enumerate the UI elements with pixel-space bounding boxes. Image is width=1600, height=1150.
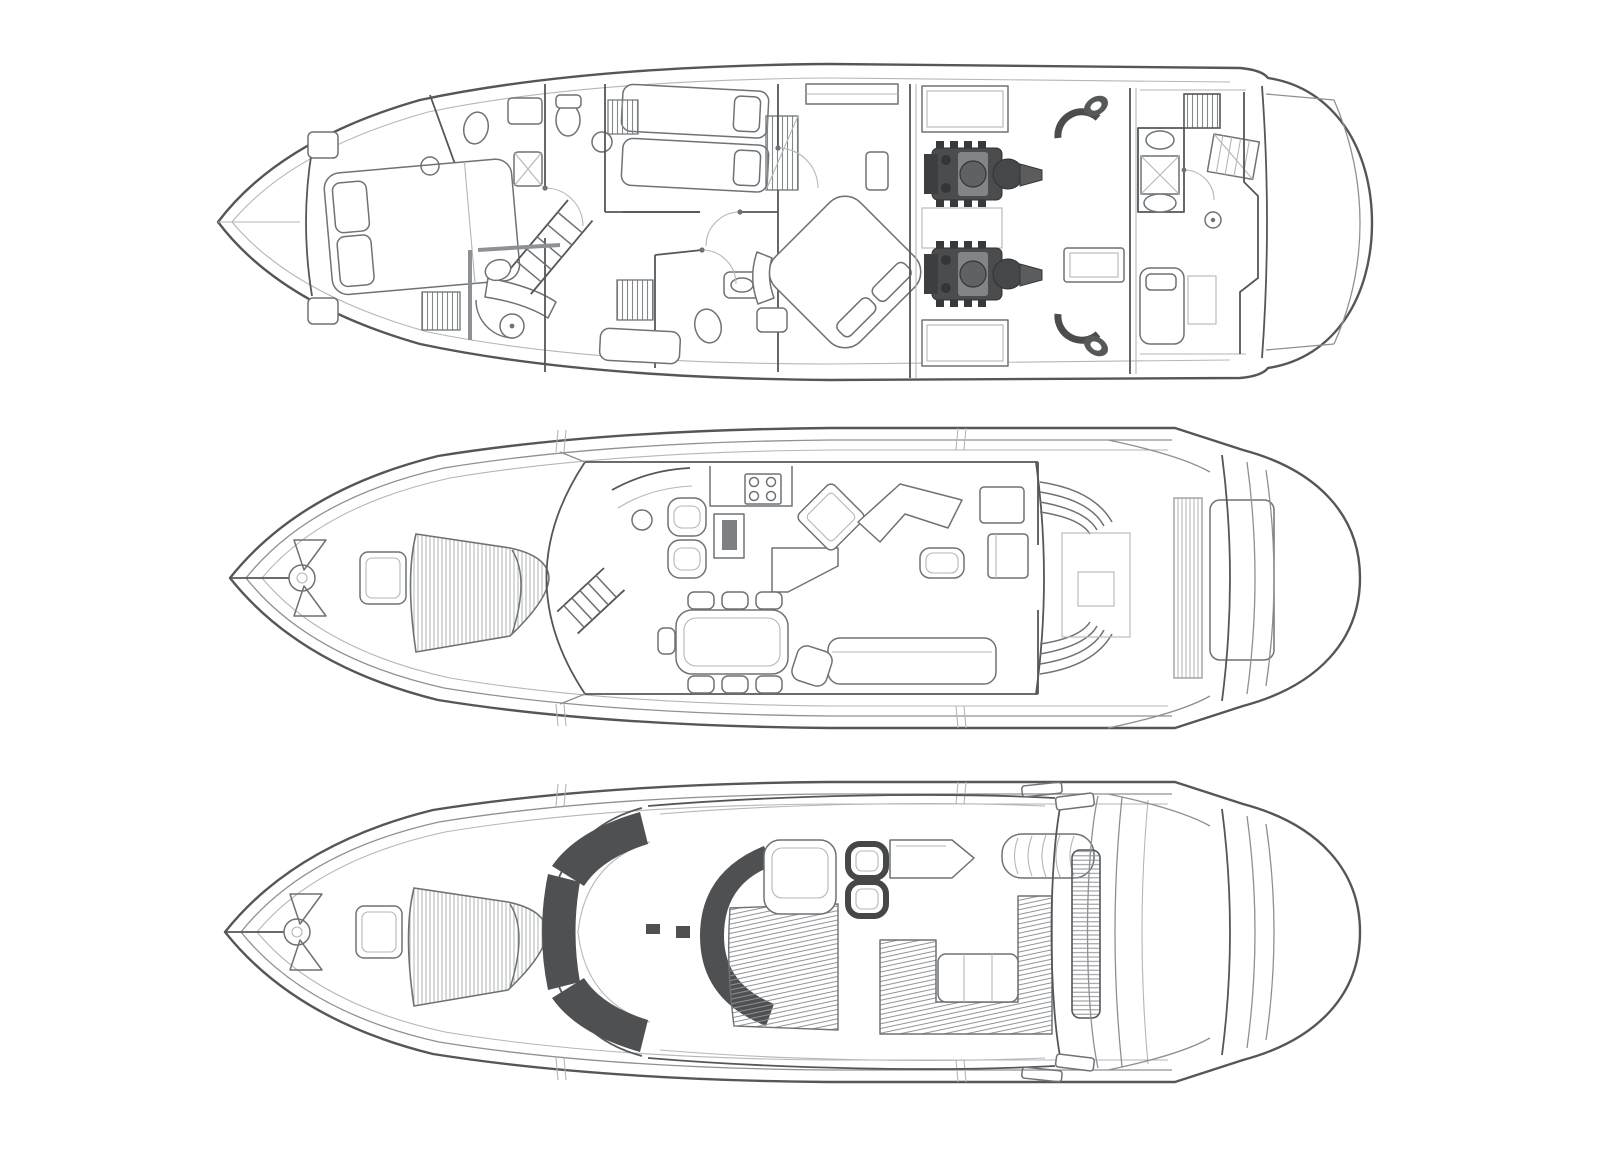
fuel-tank-starboard	[922, 320, 1008, 366]
flybridge-plan	[225, 782, 1360, 1082]
helm-sunpad	[729, 904, 838, 1030]
crew-bathroom	[1138, 128, 1184, 212]
washer	[1184, 94, 1220, 128]
yacht-deck-plans	[0, 0, 1600, 1150]
lower-deck-plan	[218, 64, 1372, 380]
deck-plans-drawing	[0, 0, 1600, 1150]
wardrobe-hatch	[422, 292, 460, 330]
floor-hatch	[617, 280, 653, 320]
windlass	[289, 565, 315, 591]
settee-table	[938, 954, 1018, 1002]
saloon-sofa	[828, 638, 996, 684]
deck-hatch	[360, 552, 406, 604]
dinette-table	[676, 610, 788, 674]
deck-hatch	[356, 906, 402, 958]
windscreen-panel	[542, 874, 580, 990]
main-deck-plan	[230, 428, 1360, 728]
fuel-tank-port	[922, 86, 1008, 132]
aft-hatch	[1174, 498, 1202, 678]
windlass	[284, 919, 310, 945]
